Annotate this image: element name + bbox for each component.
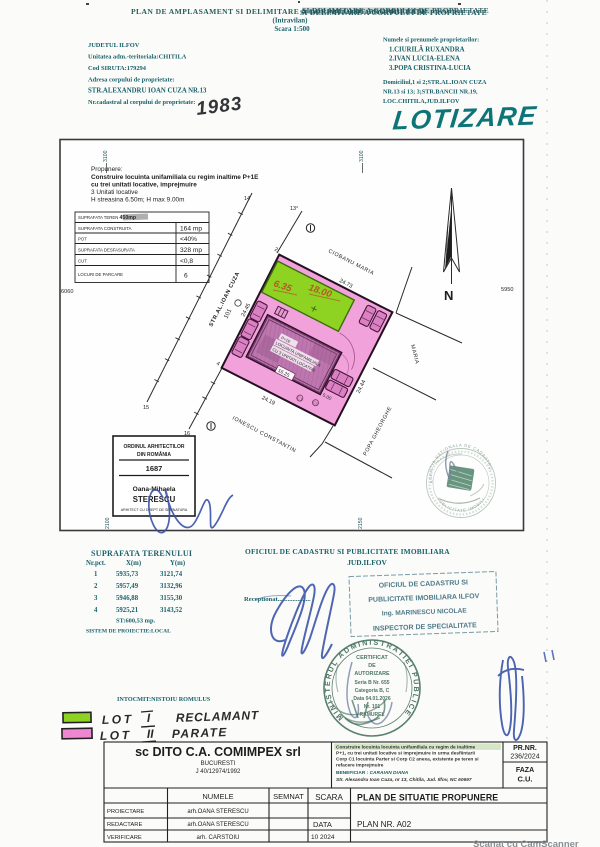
svg-text:SEMNAT: SEMNAT (273, 792, 304, 801)
svg-text:PLAN DE SITUATIE PROPUNERE: PLAN DE SITUATIE PROPUNERE (357, 793, 498, 803)
svg-text:Nr.cadastral al corpului de pr: Nr.cadastral al corpului de proprietate: (88, 99, 195, 106)
svg-text:SISTEM DE PROIECTIE:LOCAL: SISTEM DE PROIECTIE:LOCAL (86, 629, 171, 635)
svg-text:Str. Alexandru Ioan Cuza, nr 1: Str. Alexandru Ioan Cuza, nr 13, Chitila… (336, 777, 472, 783)
svg-text:OFICIUL DE CADASTRU SI PUBLICI: OFICIUL DE CADASTRU SI PUBLICITATE IMOBI… (245, 547, 450, 556)
svg-text:3 Unitati locative: 3 Unitati locative (91, 189, 138, 196)
svg-text:LOCURI DE PARCARE: LOCURI DE PARCARE (78, 272, 123, 277)
svg-text:ARHITECT CU DREPT DE SEMNATURA: ARHITECT CU DREPT DE SEMNATURA (121, 508, 188, 512)
svg-text:3132,96: 3132,96 (160, 583, 183, 590)
svg-text:164 mp: 164 mp (180, 226, 202, 233)
svg-text:POT: POT (78, 237, 87, 242)
svg-text:DATA: DATA (313, 820, 332, 829)
svg-text:LOT: LOT (102, 712, 134, 727)
svg-text:PARATE: PARATE (172, 725, 228, 741)
svg-text:AUTORIZARE: AUTORIZARE (354, 671, 390, 677)
svg-text:LOTIZARE: LOTIZARE (391, 101, 539, 136)
svg-text:SUPRAFATA CONSTRUITA: SUPRAFATA CONSTRUITA (78, 226, 132, 231)
svg-text:Domiciliul,1 si 2;STR.AL.IOAN: Domiciliul,1 si 2;STR.AL.IOAN CUZA (383, 79, 487, 86)
svg-text:4: 4 (94, 607, 98, 614)
svg-text:13°: 13° (290, 206, 298, 212)
svg-text:<0,8: <0,8 (180, 258, 193, 265)
svg-text:arh.OANA STERESCU: arh.OANA STERESCU (187, 822, 248, 828)
svg-text:II: II (147, 727, 155, 741)
svg-text:<40%: <40% (180, 236, 197, 243)
svg-text:10 2024: 10 2024 (311, 834, 335, 841)
svg-text:5946,88: 5946,88 (116, 595, 139, 602)
svg-text:Y(m): Y(m) (170, 560, 185, 567)
svg-text:RECLAMANT: RECLAMANT (176, 708, 260, 725)
svg-text:6: 6 (184, 273, 188, 280)
svg-text:SUPRAFATA TERENULUI: SUPRAFATA TERENULUI (91, 549, 192, 558)
svg-text:C.U.: C.U. (518, 775, 533, 784)
svg-text:Scanat cu CamScanner: Scanat cu CamScanner (473, 839, 579, 847)
svg-text:sc DITO C.A. COMIMPEX srl: sc DITO C.A. COMIMPEX srl (135, 745, 301, 759)
svg-text:Adresa corpului de proprietate: Adresa corpului de proprietate: (88, 77, 175, 84)
svg-text:Propunere:: Propunere: (91, 166, 123, 173)
svg-text:1687: 1687 (146, 464, 163, 473)
svg-text:ST:600,53 mp.: ST:600,53 mp. (116, 618, 156, 625)
svg-text:Seria B Nr. 655: Seria B Nr. 655 (354, 680, 389, 686)
svg-text:Categoria B, C: Categoria B, C (355, 688, 390, 694)
svg-text:arh. CARSTOIU: arh. CARSTOIU (197, 835, 240, 841)
svg-text:H streasina 6.50m; H max 9.00m: H streasina 6.50m; H max 9.00m (91, 197, 184, 204)
svg-text:N: N (444, 288, 453, 303)
svg-text:BENEFICIAR : CARAIAN DIANA: BENEFICIAR : CARAIAN DIANA (336, 770, 409, 776)
svg-text:Nr.pct.: Nr.pct. (86, 560, 106, 567)
svg-text:236/2024: 236/2024 (510, 754, 539, 761)
svg-text:CERTIFICAT: CERTIFICAT (356, 655, 388, 661)
svg-text:3100: 3100 (103, 150, 109, 162)
svg-text:14: 14 (244, 196, 250, 202)
svg-text:Corp C1 locuinta Parter si Cor: Corp C1 locuinta Parter si Corp C2 anexa… (336, 757, 479, 763)
svg-text:2100: 2100 (105, 517, 111, 529)
svg-text:Unitatea adm.-teritoriala:CHIT: Unitatea adm.-teritoriala:CHITILA (88, 54, 187, 61)
svg-text:5957,49: 5957,49 (116, 583, 139, 590)
svg-text:3121,74: 3121,74 (160, 571, 183, 578)
svg-text:2.IVAN LUCIA-ELENA: 2.IVAN LUCIA-ELENA (389, 56, 460, 63)
svg-text:JUD.ILFOV: JUD.ILFOV (347, 558, 387, 567)
svg-text:cu trei unitati locative, impr: cu trei unitati locative, imprejmuire (91, 182, 197, 189)
svg-text:INTOCMIT:NISTOIU ROMULUS: INTOCMIT:NISTOIU ROMULUS (117, 696, 211, 703)
svg-text:PR.NR.: PR.NR. (513, 745, 537, 752)
svg-text:refacere imprejmuire: refacere imprejmuire (336, 763, 384, 769)
svg-text:NR.13 si 13; 3;STR.BANCII NR.1: NR.13 si 13; 3;STR.BANCII NR.19, (383, 89, 478, 96)
svg-text:(Intravilan): (Intravilan) (273, 17, 309, 25)
svg-text:ORDINUL ARHITECTILOR: ORDINUL ARHITECTILOR (123, 444, 184, 450)
svg-text:Scara 1:500: Scara 1:500 (274, 25, 310, 33)
svg-text:DE: DE (368, 663, 376, 669)
svg-text:VERIFICARE: VERIFICARE (107, 835, 142, 841)
svg-text:CUT: CUT (78, 259, 87, 264)
svg-text:15: 15 (143, 405, 149, 411)
svg-text:3.POPA CRISTINA-LUCIA: 3.POPA CRISTINA-LUCIA (389, 65, 471, 72)
svg-text:NUMELE: NUMELE (202, 792, 233, 801)
svg-text:LOT: LOT (100, 728, 132, 743)
svg-text:2: 2 (94, 583, 98, 590)
svg-text:arh.OANA STERESCU: arh.OANA STERESCU (187, 809, 248, 815)
svg-text:1.CIURILĂ RUXANDRA: 1.CIURILĂ RUXANDRA (389, 46, 465, 54)
svg-text:J 40/12974/1992: J 40/12974/1992 (196, 769, 241, 775)
svg-text:Cod SIRUTA:179294: Cod SIRUTA:179294 (88, 65, 147, 72)
svg-text:SI DELIMITARE A CORPULUI DE PR: SI DELIMITARE A CORPULUI DE PROPRIETATE (302, 6, 489, 15)
svg-text:DIN ROMÂNIA: DIN ROMÂNIA (137, 451, 171, 458)
svg-text:SUPRAFATA DESFASURATA: SUPRAFATA DESFASURATA (78, 248, 135, 253)
svg-text:Numele si prenumele proprietar: Numele si prenumele proprietarilor: (383, 37, 479, 44)
svg-text:P+1, cu trei unitati locative: P+1, cu trei unitati locative si imprejm… (336, 751, 475, 757)
svg-text:5950: 5950 (501, 287, 513, 293)
svg-text:X(m): X(m) (126, 560, 141, 567)
svg-text:SCARA: SCARA (315, 793, 343, 802)
svg-text:JUDETUL ILFOV: JUDETUL ILFOV (88, 42, 140, 49)
svg-text:3: 3 (94, 595, 98, 602)
svg-text:5925,21: 5925,21 (116, 607, 139, 614)
svg-text:PLAN NR. A02: PLAN NR. A02 (357, 820, 412, 829)
svg-text:2150: 2150 (358, 517, 364, 529)
svg-text:328 mp: 328 mp (180, 247, 202, 254)
svg-text:BUCURESTI: BUCURESTI (201, 761, 236, 767)
svg-text:STR.ALEXANDRU IOAN CUZA NR.13: STR.ALEXANDRU IOAN CUZA NR.13 (88, 88, 207, 95)
svg-text:PROIECTARE: PROIECTARE (107, 809, 144, 815)
svg-text:3143,52: 3143,52 (160, 607, 183, 614)
svg-text:5935,73: 5935,73 (116, 571, 139, 578)
svg-text:6060: 6060 (61, 289, 73, 295)
svg-text:REDACTARE: REDACTARE (107, 822, 142, 828)
svg-text:3155,30: 3155,30 (160, 595, 183, 602)
svg-text:3100: 3100 (359, 150, 365, 162)
svg-text:FAZA: FAZA (516, 767, 534, 774)
svg-text:Construire locuinta locuinta u: Construire locuinta locuinta unifamilial… (336, 745, 475, 751)
svg-text:1: 1 (94, 571, 98, 578)
svg-text:Construire locuinta unifamilia: Construire locuinta unifamiliala cu regi… (91, 174, 259, 181)
